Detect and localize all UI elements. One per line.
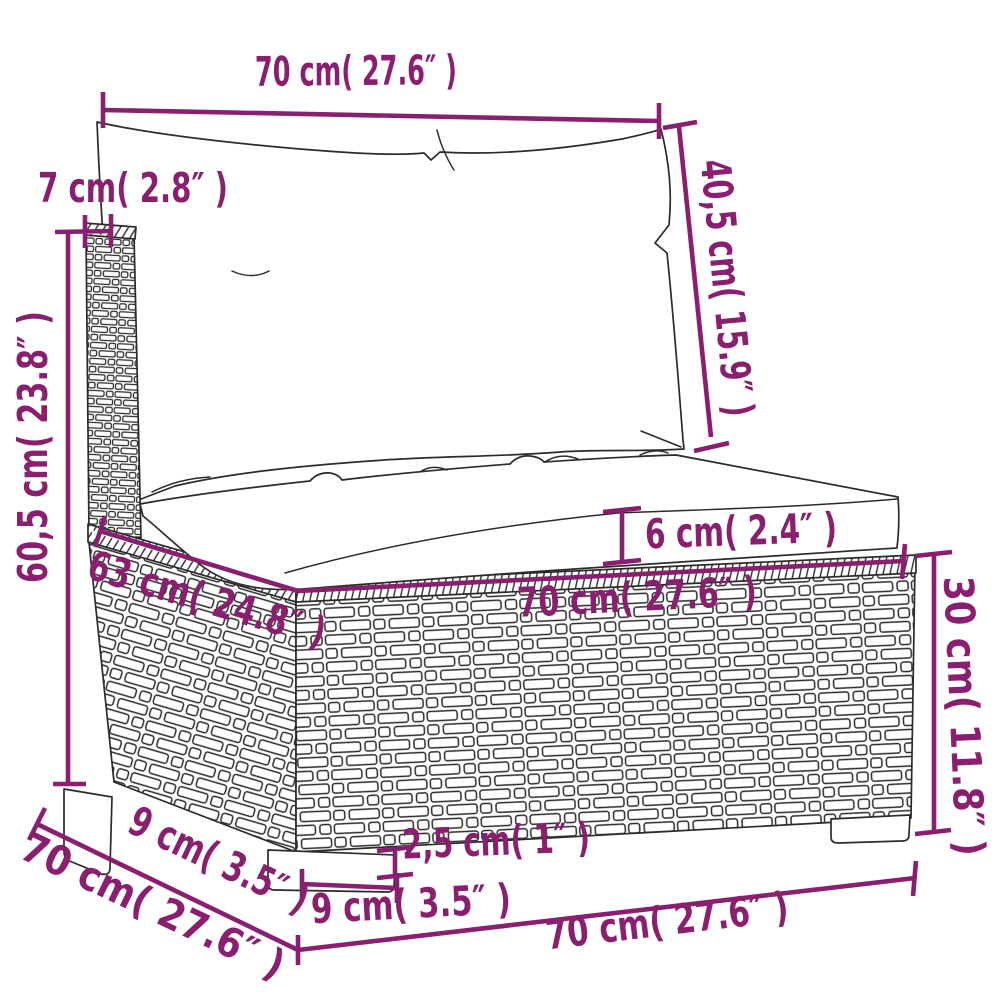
dim-back-width-label: 70 cm( 27.6″ ) [255, 46, 457, 96]
dim-base-height-label: 30 cm( 11.8″ ) [934, 575, 994, 857]
dim-total-height: 60,5 cm( 23.8″ ) [9, 232, 86, 784]
dim-leg-height: 2,5 cm( 1″ ) [377, 813, 591, 878]
back-post [84, 223, 141, 538]
front-right-leg [831, 815, 910, 843]
dim-total-height-label: 60,5 cm( 23.8″ ) [9, 311, 57, 583]
dim-leg-height-label: 2,5 cm( 1″ ) [401, 813, 591, 868]
dim-post-width-label: 7 cm( 2.8″ ) [38, 164, 228, 212]
dim-cushion-thickness-label: 6 cm( 2.4″ ) [644, 504, 838, 559]
dim-base-height: 30 cm( 11.8″ ) [915, 552, 994, 857]
dim-back-width: 70 cm( 27.6″ ) [103, 46, 659, 139]
dim-leg-width-label: 9 cm( 3.5″ ) [310, 875, 512, 933]
back-post-weave [86, 231, 141, 538]
sofa-dimension-diagram: 70 cm( 27.6″ ) 7 cm( 2.8″ ) 40,5 cm( 15.… [0, 0, 1000, 1000]
dim-base-width-label: 70 cm( 27.6″ ) [543, 883, 791, 960]
seat-cushion-fold-3 [640, 451, 668, 455]
dim-back-height-label: 40,5 cm( 15.9″ ) [691, 157, 764, 418]
product-dimension-diagram-page: 70 cm( 27.6″ ) 7 cm( 2.8″ ) 40,5 cm( 15.… [0, 0, 1000, 1000]
